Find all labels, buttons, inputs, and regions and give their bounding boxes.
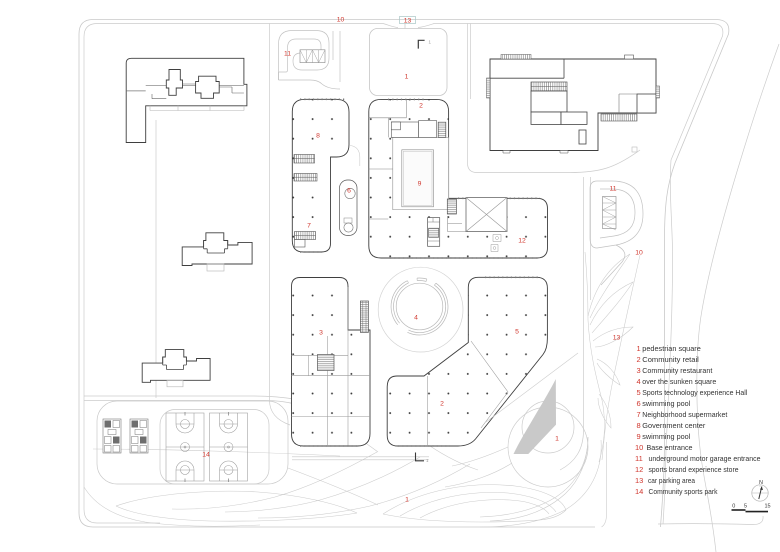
svg-text:7: 7	[307, 223, 311, 230]
svg-text:2: 2	[419, 103, 423, 110]
svg-text:Community restaurant: Community restaurant	[642, 366, 713, 375]
svg-text:Neighborhood supermarket: Neighborhood supermarket	[642, 410, 728, 419]
svg-text:13: 13	[635, 476, 643, 485]
svg-text:5: 5	[744, 504, 747, 510]
svg-text:14: 14	[635, 487, 643, 496]
svg-text:Community retail: Community retail	[642, 355, 699, 364]
svg-text:2: 2	[637, 355, 641, 364]
svg-text:N: N	[759, 480, 763, 486]
svg-text:13: 13	[613, 335, 621, 342]
svg-text:1: 1	[405, 497, 409, 504]
svg-text:12: 12	[518, 238, 526, 245]
svg-text:swimming pool: swimming pool	[642, 432, 690, 441]
svg-text:13: 13	[404, 18, 412, 25]
svg-text:9: 9	[418, 181, 422, 188]
svg-text:8: 8	[637, 421, 641, 430]
svg-text:1: 1	[555, 436, 559, 443]
svg-text:1: 1	[405, 74, 409, 81]
svg-text:2: 2	[440, 401, 444, 408]
svg-text:11: 11	[609, 186, 616, 193]
svg-text:10: 10	[337, 17, 345, 24]
svg-text:10: 10	[635, 443, 643, 452]
svg-text:4: 4	[637, 377, 641, 386]
svg-text:8: 8	[316, 133, 320, 140]
svg-text:12: 12	[635, 465, 643, 474]
svg-text:11: 11	[284, 51, 291, 58]
svg-text:0: 0	[732, 504, 735, 510]
svg-text:sports brand experience store: sports brand experience store	[649, 465, 739, 474]
svg-text:6: 6	[637, 399, 641, 408]
svg-text:6: 6	[347, 188, 351, 195]
svg-text:over the sunken square: over the sunken square	[642, 377, 716, 386]
svg-text:4: 4	[414, 315, 418, 322]
svg-text:underground motor garage entra: underground motor garage entrance	[649, 454, 761, 463]
svg-text:Base entrance: Base entrance	[647, 443, 693, 452]
svg-text:Government center: Government center	[642, 421, 705, 430]
svg-text:14: 14	[202, 452, 210, 459]
svg-text:11: 11	[635, 454, 643, 463]
svg-text:swimming pool: swimming pool	[642, 399, 690, 408]
svg-text:car parking area: car parking area	[648, 476, 696, 485]
svg-text:9: 9	[637, 432, 641, 441]
svg-text:5: 5	[637, 388, 641, 397]
svg-text:3: 3	[319, 330, 323, 337]
svg-text:3: 3	[637, 366, 641, 375]
svg-text:7: 7	[637, 410, 641, 419]
svg-text:5: 5	[515, 329, 519, 336]
svg-text:pedestrian square: pedestrian square	[642, 344, 701, 353]
svg-text:Community sports park: Community sports park	[649, 487, 718, 496]
svg-text:10: 10	[635, 250, 643, 257]
svg-text:15: 15	[764, 504, 770, 510]
svg-text:Sports technology experience H: Sports technology experience Hall	[642, 388, 747, 397]
svg-text:1: 1	[637, 344, 641, 353]
